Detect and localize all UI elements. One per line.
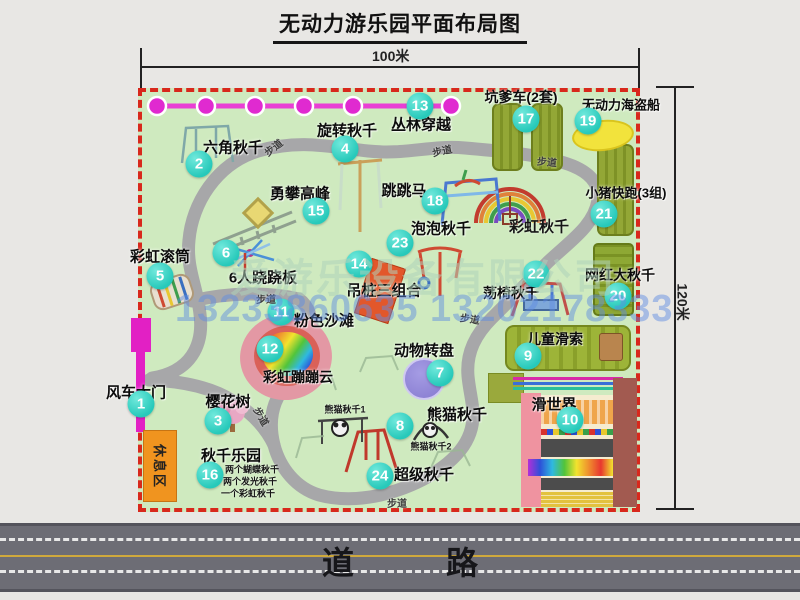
marker-label-2: 六角秋千 — [203, 137, 263, 158]
marker-badge-7: 7 — [427, 360, 454, 387]
marker-badge-10: 10 — [557, 407, 584, 434]
marker-badge-3: 3 — [205, 408, 232, 435]
marker-badge-15: 15 — [303, 198, 330, 225]
footpath-label: 步道 — [251, 404, 274, 429]
marker-label-18: 跳跳马 — [381, 180, 426, 201]
marker-badge-24: 24 — [367, 463, 394, 490]
marker-badge-2: 2 — [186, 151, 213, 178]
marker-badge-21: 21 — [591, 201, 618, 228]
road-label: 道 路 — [0, 538, 800, 584]
marker-badge-19: 19 — [575, 108, 602, 135]
plain-label: 彩虹秋千 — [509, 216, 569, 237]
marker-badge-5: 5 — [147, 263, 174, 290]
marker-label-12: 彩虹蹦蹦云 — [263, 367, 333, 387]
marker-label-21: 小猪快跑(3组) — [586, 183, 667, 202]
marker-label-24: 超级秋千 — [394, 464, 454, 485]
marker-badge-18: 18 — [422, 188, 449, 215]
footpath-label: 步道 — [387, 495, 407, 510]
marker-label-17: 坑爹车(2套) — [484, 87, 557, 107]
marker-badge-1: 1 — [128, 391, 155, 418]
footpath-label: 步道 — [536, 153, 557, 170]
plain-label: 熊猫秋千2 — [410, 440, 451, 453]
footpath-label: 步道 — [261, 135, 286, 159]
marker-badge-17: 17 — [513, 106, 540, 133]
footpath-label: 步道 — [431, 141, 454, 160]
plain-label: 一个彩虹秋千 — [221, 487, 275, 500]
marker-badge-9: 9 — [515, 343, 542, 370]
watermark-phone-numbers: 13233860635 13202178333 — [175, 288, 674, 331]
marker-badge-13: 13 — [407, 93, 434, 120]
marker-label-8: 熊猫秋千 — [427, 404, 487, 425]
marker-badge-4: 4 — [332, 136, 359, 163]
playground-plan-screenshot: 无动力游乐园平面布局图 100米 120米 — [0, 0, 800, 600]
road-band: 道 路 — [0, 523, 800, 592]
marker-badge-16: 16 — [197, 462, 224, 489]
marker-label-23: 泡泡秋千 — [411, 218, 471, 239]
plain-label: 熊猫秋千1 — [324, 403, 365, 416]
marker-badge-12: 12 — [257, 336, 284, 363]
marker-label-7: 动物转盘 — [394, 340, 454, 361]
marker-badge-8: 8 — [387, 413, 414, 440]
